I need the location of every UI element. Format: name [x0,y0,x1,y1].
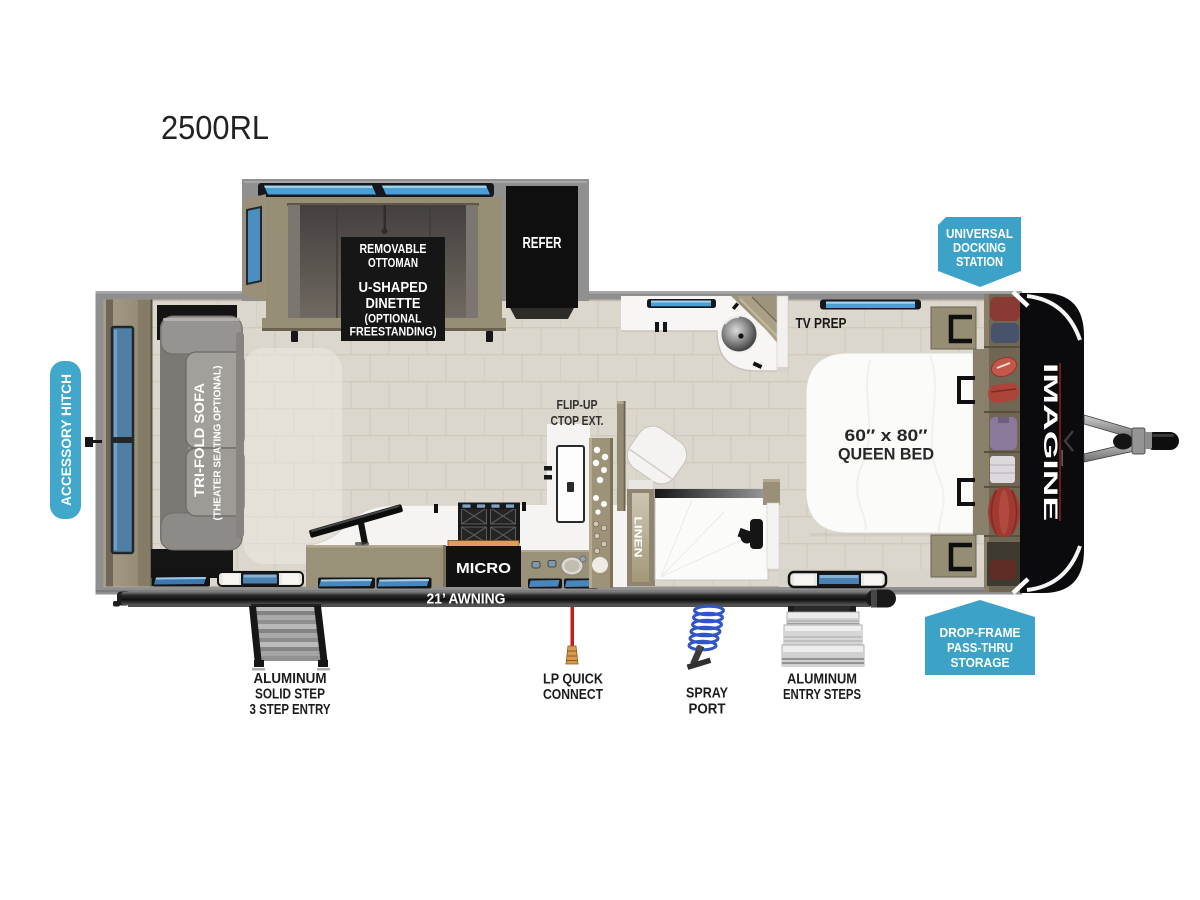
svg-text:UNIVERSAL: UNIVERSAL [946,226,1013,241]
svg-text:CONNECT: CONNECT [543,687,603,703]
svg-text:FLIP-UP: FLIP-UP [557,398,598,412]
svg-text:SPRAY: SPRAY [686,686,728,702]
svg-text:PASS-THRU: PASS-THRU [947,640,1013,655]
svg-text:MICRO: MICRO [456,560,511,577]
svg-text:ENTRY STEPS: ENTRY STEPS [783,687,861,703]
svg-text:(OPTIONAL: (OPTIONAL [365,314,422,326]
svg-text:ACCESSORY HITCH: ACCESSORY HITCH [59,374,74,506]
svg-text:STORAGE: STORAGE [951,655,1010,670]
svg-text:REFER: REFER [523,235,562,252]
svg-text:U-SHAPED: U-SHAPED [359,280,428,296]
svg-text:SOLID STEP: SOLID STEP [255,687,325,703]
svg-text:PORT: PORT [689,702,726,718]
svg-text:LP QUICK: LP QUICK [543,672,603,688]
svg-text:CTOP EXT.: CTOP EXT. [551,414,604,428]
svg-text:FREESTANDING): FREESTANDING) [350,327,437,339]
svg-text:60″ x 80″: 60″ x 80″ [845,427,928,445]
svg-text:IMAGINE: IMAGINE [1039,363,1060,521]
svg-text:21’ AWNING: 21’ AWNING [427,592,506,608]
svg-text:ALUMINUM: ALUMINUM [787,672,857,688]
svg-text:DINETTE: DINETTE [366,296,421,312]
svg-text:REMOVABLE: REMOVABLE [360,242,427,256]
svg-text:DOCKING: DOCKING [953,240,1006,255]
svg-text:3 STEP ENTRY: 3 STEP ENTRY [250,702,331,718]
svg-text:QUEEN BED: QUEEN BED [838,446,934,464]
svg-text:ALUMINUM: ALUMINUM [254,671,327,687]
svg-text:STATION: STATION [956,254,1003,269]
svg-text:OTTOMAN: OTTOMAN [368,256,418,270]
svg-text:(THEATER SEATING OPTIONAL): (THEATER SEATING OPTIONAL) [212,366,224,521]
svg-text:LINEN: LINEN [632,517,644,558]
svg-text:TV PREP: TV PREP [796,315,847,332]
svg-text:DROP-FRAME: DROP-FRAME [940,625,1021,640]
svg-text:2500RL: 2500RL [161,109,269,146]
svg-text:TRI-FOLD SOFA: TRI-FOLD SOFA [192,383,207,497]
